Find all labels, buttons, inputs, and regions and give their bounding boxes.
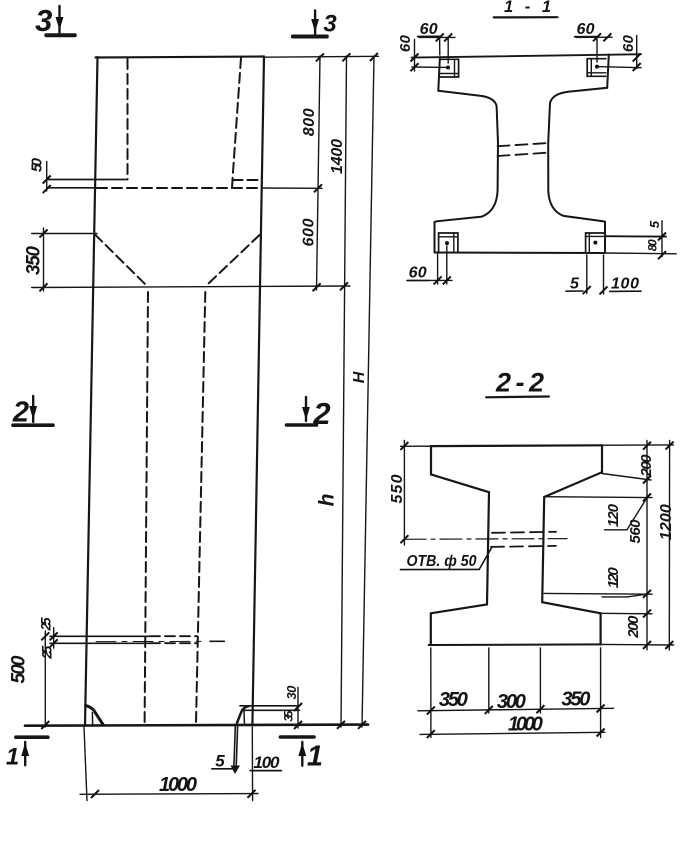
svg-text:1400: 1400 [329, 139, 346, 174]
svg-text:1000: 1000 [159, 774, 197, 796]
svg-text:350: 350 [23, 246, 44, 275]
svg-text:25: 25 [38, 617, 54, 631]
svg-text:60: 60 [397, 34, 414, 52]
svg-text:H: H [351, 371, 368, 383]
svg-text:5: 5 [647, 220, 662, 228]
svg-text:60: 60 [420, 21, 438, 38]
svg-text:5: 5 [215, 752, 225, 771]
svg-text:3: 3 [35, 3, 52, 38]
svg-text:h: h [316, 494, 339, 507]
svg-text:1-1: 1-1 [504, 0, 551, 16]
svg-text:2: 2 [312, 396, 330, 431]
svg-text:350: 350 [561, 688, 590, 710]
svg-text:300: 300 [497, 691, 526, 713]
svg-text:1: 1 [307, 741, 323, 773]
svg-text:1000: 1000 [508, 714, 543, 736]
svg-text:ОТВ. ф 50: ОТВ. ф 50 [407, 553, 477, 570]
svg-text:1200: 1200 [658, 504, 675, 540]
svg-text:120: 120 [605, 503, 622, 527]
svg-text:35: 35 [282, 710, 296, 721]
svg-text:100: 100 [611, 276, 639, 293]
svg-text:50: 50 [29, 157, 46, 172]
svg-text:3: 3 [323, 11, 337, 38]
svg-text:60: 60 [409, 265, 427, 282]
svg-text:350: 350 [439, 689, 468, 711]
svg-text:80: 80 [646, 239, 660, 251]
svg-text:100: 100 [254, 753, 281, 772]
svg-text:60: 60 [620, 34, 637, 52]
svg-text:550: 550 [389, 474, 406, 503]
svg-text:120: 120 [605, 567, 622, 589]
svg-text:200: 200 [625, 615, 642, 639]
svg-text:600: 600 [301, 218, 318, 246]
svg-text:800: 800 [301, 108, 318, 136]
svg-text:200: 200 [638, 454, 655, 478]
svg-text:2-2: 2-2 [495, 368, 544, 398]
svg-text:1: 1 [6, 744, 19, 771]
svg-text:500: 500 [9, 655, 30, 683]
svg-text:560: 560 [627, 519, 644, 544]
svg-text:25: 25 [39, 646, 55, 660]
svg-text:60: 60 [577, 21, 595, 38]
svg-text:5: 5 [570, 276, 580, 293]
svg-text:30: 30 [284, 685, 299, 700]
